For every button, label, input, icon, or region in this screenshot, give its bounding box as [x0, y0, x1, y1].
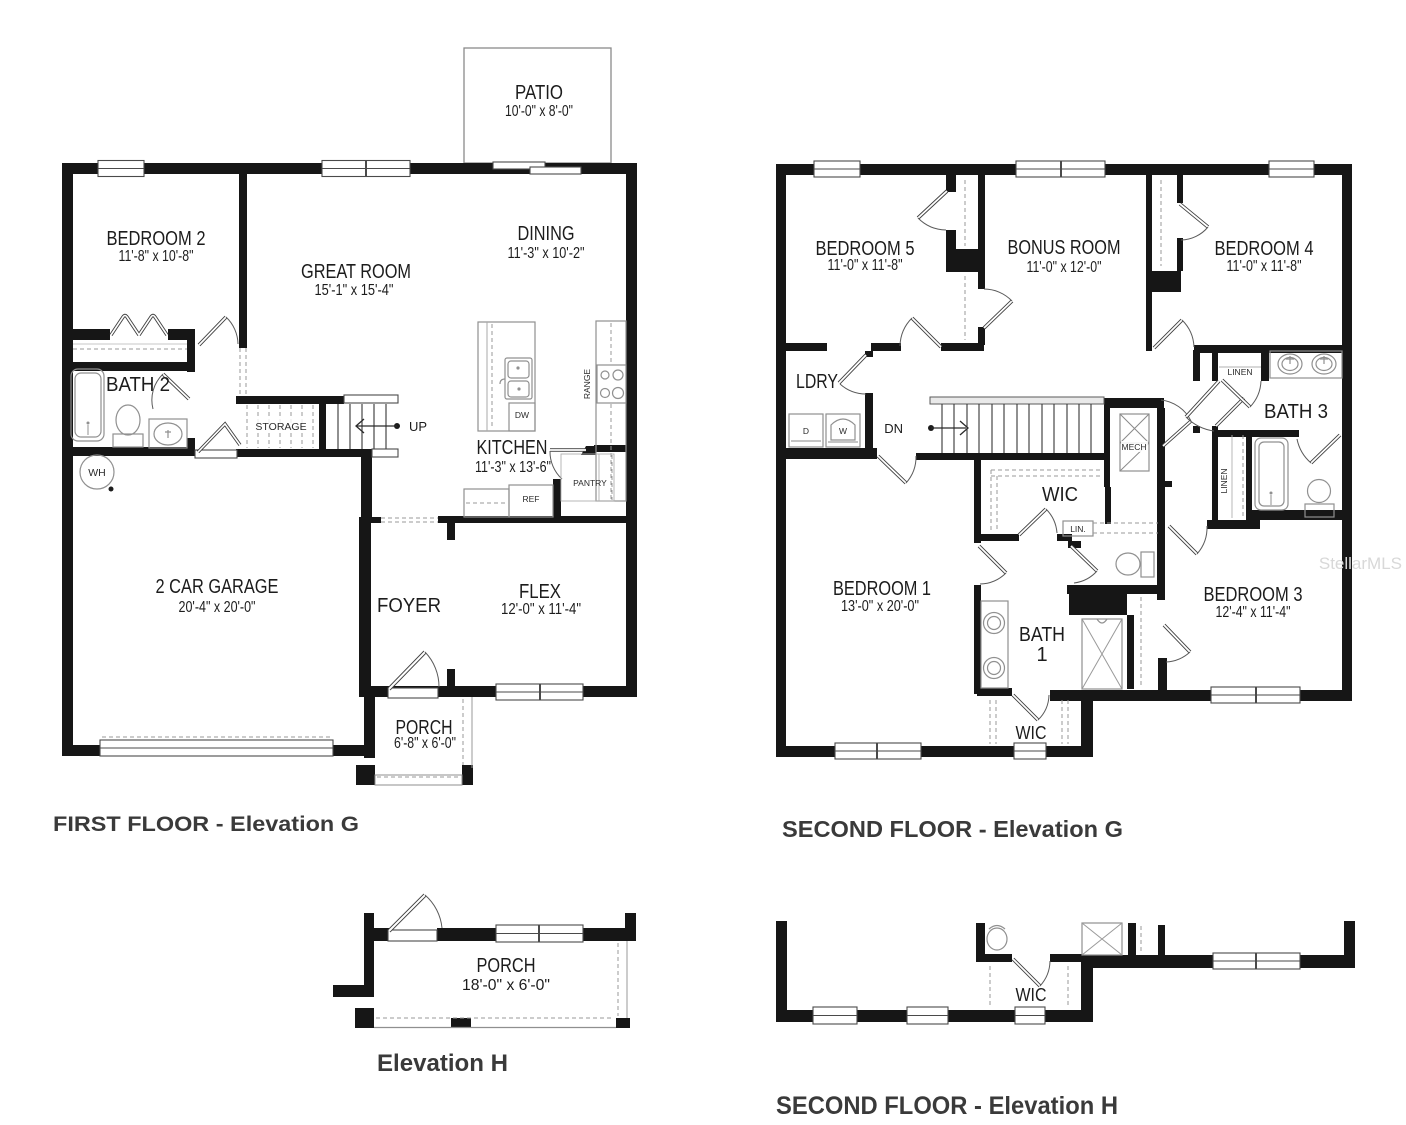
svg-text:W: W: [839, 426, 847, 436]
svg-text:RANGE: RANGE: [582, 369, 592, 400]
svg-text:SECOND FLOOR - Elevation G: SECOND FLOOR - Elevation G: [782, 816, 1123, 842]
svg-text:BONUS ROOM: BONUS ROOM: [1008, 237, 1121, 259]
svg-text:DW: DW: [515, 410, 529, 420]
svg-text:BEDROOM 2: BEDROOM 2: [107, 228, 206, 250]
svg-text:SECOND FLOOR - Elevation H: SECOND FLOOR - Elevation H: [776, 1092, 1118, 1120]
svg-text:StellarMLS: StellarMLS: [1319, 554, 1402, 573]
svg-text:Elevation H: Elevation H: [377, 1050, 508, 1077]
svg-text:LINEN: LINEN: [1227, 367, 1252, 377]
svg-text:20'-4" x 20'-0": 20'-4" x 20'-0": [179, 599, 256, 616]
svg-text:12'-0" x 11'-4": 12'-0" x 11'-4": [501, 601, 581, 618]
svg-text:LDRY: LDRY: [796, 371, 838, 393]
svg-text:18'-0" x 6'-0": 18'-0" x 6'-0": [462, 977, 550, 994]
svg-text:REF: REF: [523, 494, 540, 504]
svg-text:MECH: MECH: [1121, 442, 1146, 452]
svg-text:15'-1" x 15'-4": 15'-1" x 15'-4": [315, 282, 394, 299]
svg-text:10'-0" x 8'-0": 10'-0" x 8'-0": [505, 103, 573, 120]
svg-text:BEDROOM 3: BEDROOM 3: [1204, 584, 1303, 606]
svg-text:UP: UP: [409, 419, 427, 434]
svg-text:11'-0" x 11'-8": 11'-0" x 11'-8": [1227, 258, 1302, 275]
svg-text:12'-4" x 11'-4": 12'-4" x 11'-4": [1216, 604, 1291, 621]
svg-text:BATH 2: BATH 2: [106, 374, 170, 396]
svg-text:FLEX: FLEX: [519, 581, 561, 603]
svg-text:11'-3" x 13'-6": 11'-3" x 13'-6": [475, 459, 551, 476]
svg-text:STORAGE: STORAGE: [255, 421, 306, 433]
svg-text:2 CAR GARAGE: 2 CAR GARAGE: [156, 576, 279, 598]
svg-text:6'-8" x 6'-0": 6'-8" x 6'-0": [394, 735, 456, 752]
svg-text:D: D: [803, 426, 809, 436]
svg-text:DN: DN: [884, 421, 903, 436]
svg-text:11'-3" x 10'-2": 11'-3" x 10'-2": [508, 245, 585, 262]
svg-text:11'-0" x 12'-0": 11'-0" x 12'-0": [1027, 259, 1102, 276]
svg-text:BATH: BATH: [1019, 624, 1065, 646]
svg-text:DINING: DINING: [518, 223, 575, 245]
svg-text:1: 1: [1036, 644, 1047, 666]
svg-text:FOYER: FOYER: [377, 595, 441, 617]
svg-text:LINEN: LINEN: [1219, 468, 1229, 493]
svg-text:GREAT ROOM: GREAT ROOM: [301, 261, 411, 283]
svg-text:11'-8" x 10'-8": 11'-8" x 10'-8": [119, 248, 194, 265]
svg-text:WH: WH: [88, 467, 106, 479]
svg-text:LIN.: LIN.: [1070, 524, 1086, 534]
svg-text:BEDROOM 1: BEDROOM 1: [833, 578, 931, 600]
svg-text:WIC: WIC: [1042, 484, 1078, 506]
svg-text:KITCHEN: KITCHEN: [477, 437, 548, 459]
svg-text:PATIO: PATIO: [515, 82, 563, 104]
svg-text:WIC: WIC: [1016, 723, 1047, 743]
svg-text:13'-0" x 20'-0": 13'-0" x 20'-0": [841, 598, 919, 615]
svg-text:WIC: WIC: [1016, 985, 1047, 1005]
svg-text:BATH 3: BATH 3: [1264, 401, 1328, 423]
svg-text:11'-0" x 11'-8": 11'-0" x 11'-8": [828, 257, 903, 274]
svg-text:FIRST FLOOR - Elevation G: FIRST FLOOR - Elevation G: [53, 813, 359, 836]
svg-text:BEDROOM 4: BEDROOM 4: [1215, 238, 1314, 260]
svg-text:PORCH: PORCH: [477, 955, 536, 977]
svg-text:PANTRY: PANTRY: [573, 478, 607, 488]
